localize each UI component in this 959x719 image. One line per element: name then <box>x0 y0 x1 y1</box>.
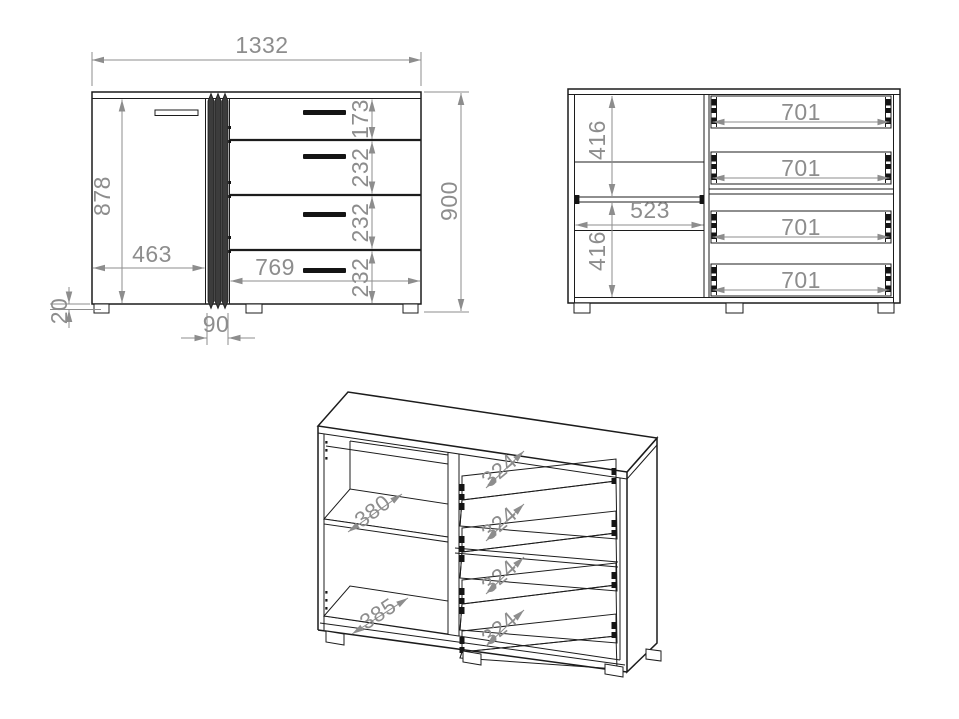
hinge-holes <box>325 441 327 610</box>
dim-drawer-depth-4: 324 <box>477 606 522 650</box>
dim-drawer-height-1: 173 <box>347 99 373 139</box>
dim-drawer-depth-3: 324 <box>477 554 522 598</box>
dim-front-height: 878 <box>89 176 115 216</box>
dim-drawer-height-4: 232 <box>347 258 373 298</box>
dim-strip-width: 90 <box>203 311 230 337</box>
dim-lower-compartment: 416 <box>584 231 610 271</box>
perspective-view: 380 385 324 324 324 324 <box>318 392 661 677</box>
dim-drawer-height-2: 232 <box>347 148 373 188</box>
dim-drawer-box-width-3: 701 <box>781 214 821 240</box>
dim-upper-compartment: 416 <box>584 120 610 160</box>
foot <box>574 303 590 313</box>
side-panel <box>627 438 657 672</box>
foot <box>94 304 109 313</box>
door-handle <box>155 110 198 116</box>
carcass-view-cabinet <box>568 89 900 313</box>
drawing-svg: 1332 900 878 463 769 20 <box>0 0 959 719</box>
dim-drawer-box-width-4: 701 <box>781 267 821 293</box>
shelf-connector <box>700 195 704 204</box>
foot <box>403 304 418 313</box>
dim-drawer-height-3: 232 <box>347 203 373 243</box>
furniture-technical-drawing: 1332 900 878 463 769 20 <box>0 0 959 719</box>
foot <box>646 649 661 661</box>
foot <box>326 631 344 645</box>
dim-base-gap: 20 <box>46 298 72 325</box>
drawer-handle <box>303 212 346 217</box>
dim-door-width: 463 <box>132 241 172 267</box>
foot <box>246 304 262 313</box>
front-view: 1332 900 878 463 769 20 <box>46 32 469 345</box>
foot <box>726 303 743 313</box>
foot <box>878 303 894 313</box>
drawer-handle <box>303 268 346 273</box>
dim-interior-width: 523 <box>630 197 670 223</box>
dim-total-height: 900 <box>436 181 462 221</box>
foot <box>605 664 623 677</box>
shelf-connector <box>575 195 580 204</box>
foot <box>463 651 481 665</box>
dim-total-width: 1332 <box>235 32 288 58</box>
dim-drawer-box-width-1: 701 <box>781 99 821 125</box>
fluted-strip <box>208 94 228 309</box>
dim-drawer-depth-2: 324 <box>477 501 522 545</box>
dim-drawer-box-width-2: 701 <box>781 155 821 181</box>
dim-drawer-front-width: 769 <box>255 254 295 280</box>
carcass-view: 416 416 523 701 701 701 701 <box>568 89 900 313</box>
drawer-handle <box>303 154 346 159</box>
drawer-handle <box>303 110 346 115</box>
